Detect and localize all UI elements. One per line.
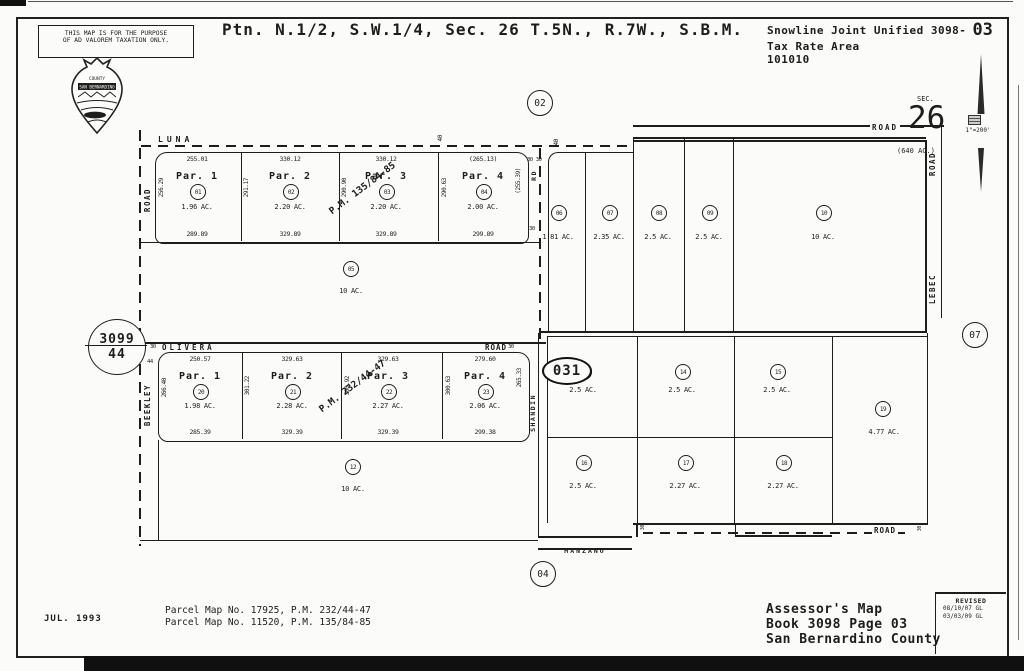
r2p2-number: 21 bbox=[285, 384, 301, 400]
p16-number: 16 bbox=[576, 455, 592, 471]
p15-area: 2.5 AC. bbox=[755, 386, 799, 394]
assessor-line-1: Assessor's Map bbox=[766, 602, 941, 617]
r1p2-number: 02 bbox=[283, 184, 299, 200]
p07-area: 2.35 AC. bbox=[587, 233, 631, 241]
parcel-map-references: Parcel Map No. 17925, P.M. 232/44-47 Par… bbox=[165, 605, 371, 629]
block-id-number: 031 bbox=[553, 363, 581, 379]
scan-band-bottom bbox=[84, 656, 1024, 671]
assessor-map-page: THIS MAP IS FOR THE PURPOSE OF AD VALORE… bbox=[0, 0, 1024, 671]
east-mid-div-3 bbox=[832, 336, 833, 523]
r2p1-number: 20 bbox=[193, 384, 209, 400]
west-road-label: ROAD bbox=[143, 188, 152, 212]
east-mid-row-divider bbox=[547, 437, 832, 438]
south-road-tick-line bbox=[735, 523, 736, 536]
section-number: 26 bbox=[908, 103, 945, 133]
disclaimer-line-2: OF AD VALOREM TAXATION ONLY. bbox=[39, 37, 193, 44]
r2p4-right-dim: 265.33 bbox=[516, 368, 523, 387]
p06-number: 06 bbox=[551, 205, 567, 221]
south-road-label: ROAD bbox=[872, 526, 898, 535]
luna-width-tick-3: 40 bbox=[553, 139, 560, 145]
r2p2-name: Par. 2 bbox=[262, 371, 322, 382]
p18-area: 2.27 AC. bbox=[761, 482, 805, 490]
r2p4-area: 2.06 AC. bbox=[455, 402, 515, 410]
r1p1-top-dim: 255.01 bbox=[167, 155, 227, 163]
south-road-edge bbox=[633, 523, 928, 525]
olivera-tick-30-east: 30 bbox=[508, 344, 514, 350]
tax-book-page: 03 bbox=[972, 20, 992, 40]
luna-width-tick-2: 40 bbox=[437, 135, 444, 141]
r1p1-number: 01 bbox=[190, 184, 206, 200]
olivera-tick-30-west: 30 bbox=[150, 344, 156, 350]
p06-area: 1.81 AC. bbox=[536, 233, 580, 241]
shandin-road-west-edge bbox=[538, 333, 539, 540]
svg-text:COUNTY: COUNTY bbox=[89, 76, 106, 82]
r1p4-side-dim: 290.63 bbox=[441, 178, 448, 197]
r1p4-name: Par. 4 bbox=[453, 171, 513, 182]
r2p1-side-dim: 266.40 bbox=[161, 378, 168, 397]
assessor-line-3: San Bernardino County bbox=[766, 632, 941, 647]
p12-bottom-line bbox=[140, 540, 538, 541]
rd-road-width-tick: 30 30 bbox=[527, 157, 542, 163]
r2p3-area: 2.27 AC. bbox=[358, 402, 418, 410]
lebec-road-label-name: LEBEC bbox=[928, 274, 937, 304]
adjacent-section-south: 04 bbox=[530, 561, 556, 587]
scan-mark-top bbox=[0, 0, 26, 6]
north-road-label: ROAD bbox=[870, 123, 900, 132]
east-mid-right-edge bbox=[927, 333, 928, 523]
r1p3-number: 03 bbox=[379, 184, 395, 200]
map-frame bbox=[16, 17, 1009, 658]
olivera-road-label-road: ROAD bbox=[485, 343, 507, 352]
r1p2-name: Par. 2 bbox=[260, 171, 320, 182]
r1p2-side-dim: 291.17 bbox=[243, 178, 250, 197]
p16-area: 2.5 AC. bbox=[561, 482, 605, 490]
map-book-circle: 3099 44 bbox=[88, 319, 146, 375]
lebec-road-label-road: ROAD bbox=[928, 152, 937, 176]
r1p1-bottom-dim: 289.89 bbox=[167, 230, 227, 238]
r1p4-area: 2.00 AC. bbox=[453, 203, 513, 211]
r2p2-top-dim: 329.63 bbox=[262, 355, 322, 363]
p19-area: 4.77 AC. bbox=[860, 428, 908, 436]
p05-area: 10 AC. bbox=[327, 287, 375, 295]
p18-number: 18 bbox=[776, 455, 792, 471]
r2p3-bottom-dim: 329.39 bbox=[358, 428, 418, 436]
r2p4-side-dim: 300.63 bbox=[445, 376, 452, 395]
south-road-tick-30-west: 30 bbox=[640, 525, 646, 530]
p17-area: 2.27 AC. bbox=[663, 482, 707, 490]
map-page-number: 44 bbox=[108, 347, 126, 362]
p05-number: 05 bbox=[343, 261, 359, 277]
r2p4-bottom-dim: 299.38 bbox=[455, 428, 515, 436]
r2p4-name: Par. 4 bbox=[455, 371, 515, 382]
rd-road-label: RD bbox=[530, 170, 538, 181]
lebec-road-edge-west bbox=[925, 140, 927, 333]
r1p1-area: 1.96 AC. bbox=[167, 203, 227, 211]
svg-text:SAN BERNARDINO: SAN BERNARDINO bbox=[79, 85, 115, 90]
parcel-map-ref-2: Parcel Map No. 11520, P.M. 135/84-85 bbox=[165, 617, 371, 629]
r1p1-side-dim: 256.29 bbox=[158, 178, 165, 197]
p14-number: 14 bbox=[675, 364, 691, 380]
tax-rate-area-code: 101010 bbox=[767, 53, 993, 66]
adjacent-section-north: 02 bbox=[527, 90, 553, 116]
p13-area: 2.5 AC. bbox=[561, 386, 605, 394]
p12-area: 10 AC. bbox=[329, 485, 377, 493]
p12-left-edge bbox=[158, 440, 159, 540]
luna-road-label: LUNA bbox=[156, 135, 195, 144]
map-book-divider bbox=[85, 345, 147, 346]
r1p4-right-dim: (255.39) bbox=[515, 168, 522, 194]
olivera-tick-44: 44 bbox=[147, 359, 153, 365]
r1p1-name: Par. 1 bbox=[167, 171, 227, 182]
lebec-road-edge-east bbox=[941, 126, 942, 318]
scan-edge-right bbox=[1018, 85, 1019, 640]
r2p4-top-dim: 279.60 bbox=[455, 355, 515, 363]
manzano-road-label: MANZANO bbox=[564, 547, 605, 555]
south-road-centerline bbox=[643, 532, 905, 534]
r1p4-number: 04 bbox=[476, 184, 492, 200]
r2p1-top-dim: 250.57 bbox=[170, 355, 230, 363]
p09-area: 2.5 AC. bbox=[687, 233, 731, 241]
r2p1-bottom-dim: 285.39 bbox=[170, 428, 230, 436]
p09-number: 09 bbox=[702, 205, 718, 221]
p12-number: 12 bbox=[345, 459, 361, 475]
r2p2-bottom-dim: 329.39 bbox=[262, 428, 322, 436]
r1p4-top-dim: (265.13) bbox=[453, 155, 513, 163]
tax-rate-block: Snowline Joint Unified 3098- 03 Tax Rate… bbox=[767, 24, 993, 66]
assessor-block: Assessor's Map Book 3098 Page 03 San Ber… bbox=[766, 602, 941, 647]
r1p2-top-dim: 330.12 bbox=[260, 155, 320, 163]
scan-edge-top bbox=[28, 1, 1013, 2]
south-road-segment bbox=[735, 535, 832, 537]
shandin-road-label: SHANDIN bbox=[529, 394, 537, 432]
p08-area: 2.5 AC. bbox=[636, 233, 680, 241]
east-mid-div-1 bbox=[637, 336, 638, 523]
east-mid-div-2 bbox=[734, 336, 735, 523]
revised-box: REVISED 08/10/07 GL 03/03/09 GL bbox=[935, 592, 1006, 654]
revised-label: REVISED bbox=[936, 597, 1006, 605]
p07-number: 07 bbox=[602, 205, 618, 221]
page-title: Ptn. N.1/2, S.W.1/4, Sec. 26 T.5N., R.7W… bbox=[222, 20, 702, 39]
assessor-line-2: Book 3098 Page 03 bbox=[766, 617, 941, 632]
r1p3-bottom-dim: 329.89 bbox=[356, 230, 416, 238]
r1p2-area: 2.20 AC. bbox=[260, 203, 320, 211]
p14-area: 2.5 AC. bbox=[660, 386, 704, 394]
east-top-div-3 bbox=[684, 138, 685, 331]
r2p4-number: 23 bbox=[478, 384, 494, 400]
beekley-road-label: BEEKLEY bbox=[143, 384, 152, 426]
p17-number: 17 bbox=[678, 455, 694, 471]
rd-road-tick-30: 30 bbox=[529, 226, 535, 232]
p08-number: 08 bbox=[651, 205, 667, 221]
r2p1-area: 1.98 AC. bbox=[170, 402, 230, 410]
r1p3-area: 2.20 AC. bbox=[356, 203, 416, 211]
block-0810-step bbox=[633, 137, 634, 153]
scale-flag-icon bbox=[968, 115, 981, 125]
manzano-road-box: MANZANO bbox=[538, 536, 632, 550]
adjacent-section-east: 07 bbox=[962, 322, 988, 348]
r2p3-number: 22 bbox=[381, 384, 397, 400]
p15-number: 15 bbox=[770, 364, 786, 380]
revised-entry-2: 03/03/09 GL bbox=[936, 613, 1006, 621]
r2p1-name: Par. 1 bbox=[170, 371, 230, 382]
map-date: JUL. 1993 bbox=[44, 614, 102, 624]
scale-label: 1"=200' bbox=[954, 127, 1002, 134]
p19-number: 19 bbox=[875, 401, 891, 417]
r2p2-side-dim: 301.22 bbox=[244, 376, 251, 395]
disclaimer-line-1: THIS MAP IS FOR THE PURPOSE bbox=[39, 30, 193, 37]
r1p4-bottom-dim: 299.89 bbox=[453, 230, 513, 238]
revised-entry-1: 08/10/07 GL bbox=[936, 605, 1006, 613]
san-bernardino-county-seal-icon: COUNTY SAN BERNARDINO bbox=[64, 54, 130, 138]
north-road-edge-lower bbox=[633, 140, 926, 142]
r1p2-bottom-dim: 329.89 bbox=[260, 230, 320, 238]
tax-district: Snowline Joint Unified 3098- bbox=[767, 24, 966, 37]
p10-area: 10 AC. bbox=[801, 233, 845, 241]
south-road-tick-30-east: 30 bbox=[917, 526, 923, 531]
east-mid-top-line bbox=[547, 336, 928, 337]
block-06-corner bbox=[548, 152, 634, 332]
olivera-road-label: OLIVERA bbox=[162, 343, 215, 352]
block-id-ellipse: 031 bbox=[542, 357, 592, 385]
block-0810-top-line bbox=[633, 137, 926, 139]
east-top-div-4 bbox=[733, 138, 734, 331]
p10-number: 10 bbox=[816, 205, 832, 221]
rd-road-centerline bbox=[539, 148, 541, 342]
south-road-step bbox=[636, 523, 638, 537]
tax-rate-area-label: Tax Rate Area bbox=[767, 40, 993, 53]
parcel-map-ref-1: Parcel Map No. 17925, P.M. 232/44-47 bbox=[165, 605, 371, 617]
